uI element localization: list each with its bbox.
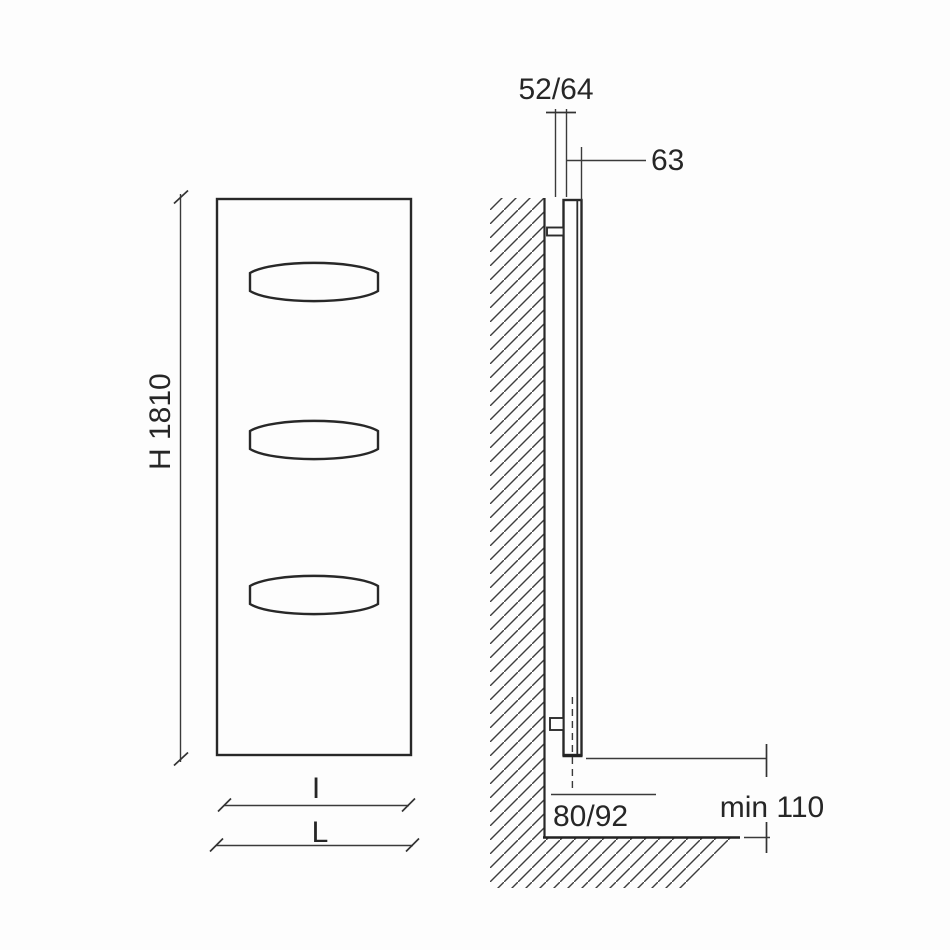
dimension-thickness: 52/64 [518,73,593,197]
floor-clearance-label: min 110 [720,791,825,824]
pipe-offset-label: 80/92 [553,800,628,833]
wall-floor-hatch-section [490,198,738,888]
depth-label: 63 [651,144,684,177]
radiator-front-outline [217,199,411,755]
technical-drawing-canvas: H 1810 I L 52/64 [0,0,950,950]
radiator-side-profile [564,200,582,755]
dimension-height: H 1810 [144,191,188,766]
mounting-bracket-top [547,228,564,236]
radiator-dimension-diagram: H 1810 I L 52/64 [0,0,950,950]
side-view [490,198,740,888]
dimension-inner-width: I [218,772,415,812]
panel-cutout-middle [250,421,378,459]
height-dimension-label: H 1810 [144,373,177,470]
panel-cutout-top [250,263,378,301]
dimension-overall-width: L [210,816,419,852]
inner-width-label: I [312,772,320,805]
panel-cutout-bottom [250,576,378,614]
overall-width-label: L [312,816,329,849]
mounting-bracket-bottom [550,718,564,730]
dimension-pipe-offset: 80/92 [551,795,656,834]
front-view [217,199,411,755]
dimension-depth: 63 [566,144,684,200]
thickness-label: 52/64 [518,73,593,106]
